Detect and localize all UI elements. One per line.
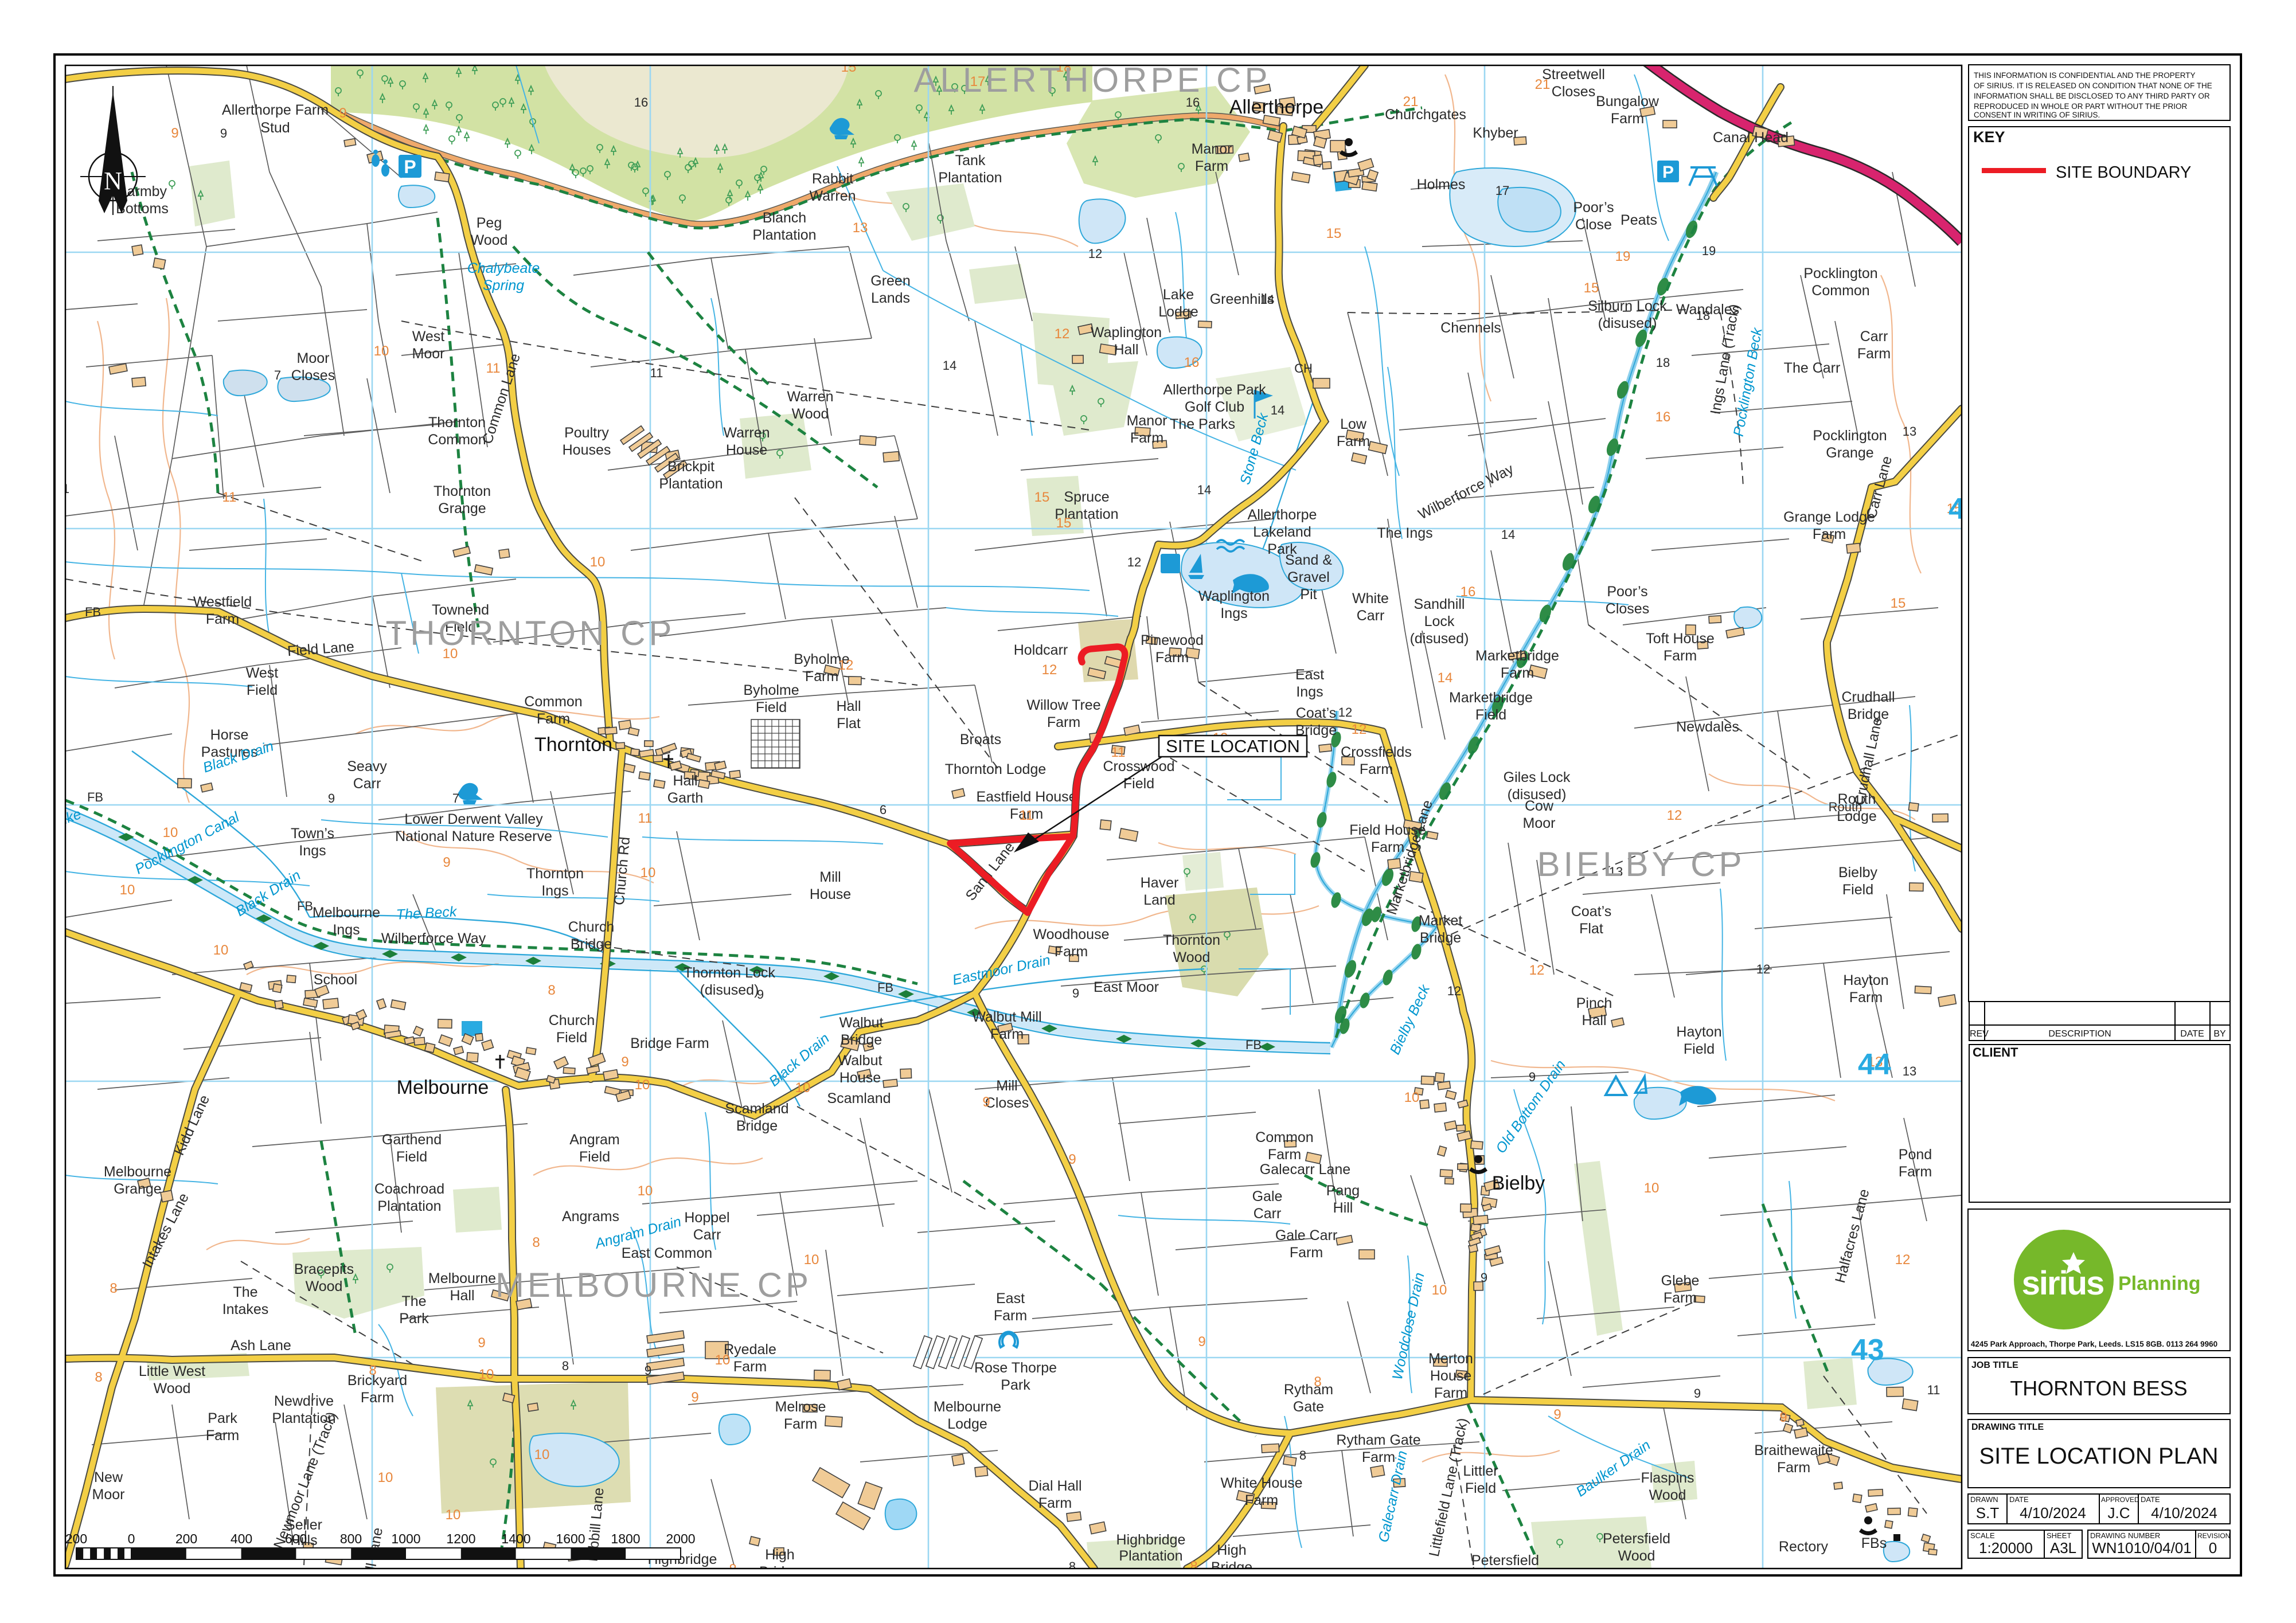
- svg-text:Byholme: Byholme: [743, 682, 799, 698]
- svg-text:9: 9: [328, 791, 335, 805]
- svg-text:Wilberforce Way: Wilberforce Way: [381, 930, 486, 947]
- svg-text:9: 9: [1481, 1270, 1487, 1285]
- svg-text:Flat: Flat: [837, 715, 861, 732]
- svg-text:14: 14: [1271, 403, 1284, 417]
- svg-text:9: 9: [645, 1363, 651, 1378]
- svg-text:Coachroad: Coachroad: [374, 1181, 444, 1197]
- svg-text:18: 18: [1656, 355, 1670, 370]
- svg-text:200: 200: [175, 1531, 197, 1546]
- svg-text:FB: FB: [877, 980, 893, 995]
- svg-text:10: 10: [795, 1080, 811, 1096]
- svg-text:Crudhall: Crudhall: [1841, 689, 1895, 705]
- svg-text:Seavy: Seavy: [347, 758, 387, 775]
- svg-text:9: 9: [1779, 1410, 1787, 1425]
- svg-text:16: 16: [1461, 584, 1476, 600]
- svg-text:JOB TITLE: JOB TITLE: [1971, 1360, 2018, 1370]
- svg-text:FB: FB: [297, 899, 313, 913]
- svg-text:Park: Park: [1267, 541, 1297, 557]
- svg-text:Allerthorpe: Allerthorpe: [1248, 507, 1317, 523]
- svg-text:Farm: Farm: [206, 1428, 239, 1444]
- svg-text:15: 15: [1891, 596, 1906, 611]
- svg-text:Houses: Houses: [563, 442, 611, 458]
- svg-text:600: 600: [285, 1531, 307, 1546]
- svg-text:10: 10: [534, 1447, 550, 1462]
- svg-text:8: 8: [532, 1235, 540, 1250]
- svg-text:1800: 1800: [611, 1531, 640, 1546]
- svg-text:14: 14: [943, 358, 956, 373]
- svg-text:Hall: Hall: [836, 698, 861, 714]
- svg-text:Hayton: Hayton: [1843, 972, 1888, 988]
- svg-text:10: 10: [1432, 1282, 1447, 1298]
- svg-text:Farm: Farm: [1290, 1245, 1323, 1261]
- svg-text:Plantation: Plantation: [1119, 1548, 1182, 1564]
- svg-text:Angram: Angram: [569, 1132, 620, 1148]
- svg-text:9: 9: [1694, 1386, 1701, 1401]
- svg-text:House: House: [1430, 1368, 1471, 1384]
- svg-text:Field: Field: [396, 1149, 427, 1165]
- svg-text:Melbourne: Melbourne: [934, 1399, 1001, 1415]
- svg-text:11: 11: [650, 366, 663, 380]
- svg-text:Marketbridge: Marketbridge: [1475, 648, 1559, 664]
- svg-text:Mill: Mill: [819, 869, 841, 885]
- svg-text:SHEET: SHEET: [2047, 1531, 2071, 1540]
- svg-text:Low: Low: [1340, 416, 1367, 432]
- svg-text:Littler: Littler: [1463, 1463, 1498, 1479]
- svg-text:43: 43: [1851, 1333, 1884, 1367]
- svg-text:Churchgates: Churchgates: [1385, 107, 1466, 123]
- svg-text:Lands: Lands: [871, 290, 910, 306]
- svg-text:Thornton Lock: Thornton Lock: [684, 965, 775, 981]
- svg-text:SITE BOUNDARY: SITE BOUNDARY: [2056, 163, 2191, 182]
- svg-text:Plantation: Plantation: [377, 1198, 441, 1214]
- svg-text:17: 17: [1495, 183, 1509, 198]
- svg-text:16: 16: [634, 95, 648, 109]
- svg-text:11: 11: [222, 490, 237, 505]
- svg-text:Crossfields: Crossfields: [1341, 744, 1412, 760]
- svg-text:Grange: Grange: [114, 1181, 161, 1197]
- svg-text:4/10/2024: 4/10/2024: [2151, 1504, 2217, 1522]
- svg-text:N: N: [104, 167, 122, 195]
- svg-text:11: 11: [638, 811, 653, 826]
- svg-text:Highbridge: Highbridge: [1116, 1532, 1186, 1548]
- svg-text:Walbut: Walbut: [838, 1053, 883, 1069]
- svg-text:Farm: Farm: [537, 711, 570, 727]
- svg-text:12: 12: [1756, 962, 1770, 976]
- svg-text:REPRODUCED IN WHOLE OR PAR: REPRODUCED IN WHOLE OR PART WITHOUT THE …: [1974, 102, 2188, 111]
- svg-text:12: 12: [1352, 722, 1367, 737]
- svg-text:SITE LOCATION: SITE LOCATION: [1166, 736, 1300, 756]
- svg-text:12: 12: [1895, 1252, 1911, 1268]
- svg-text:Farm: Farm: [1813, 526, 1846, 542]
- svg-text:Pocklington: Pocklington: [1803, 265, 1877, 281]
- svg-text:House: House: [810, 886, 851, 902]
- svg-text:(disused): (disused): [1410, 631, 1469, 647]
- svg-text:Melrose: Melrose: [775, 1399, 826, 1415]
- svg-text:9: 9: [443, 855, 450, 870]
- svg-text:The: The: [233, 1284, 257, 1300]
- svg-text:High: High: [1217, 1542, 1246, 1558]
- svg-text:Hill: Hill: [1333, 1200, 1353, 1216]
- svg-text:Town’s: Town’s: [291, 826, 334, 842]
- svg-text:Ings: Ings: [333, 922, 360, 938]
- svg-text:9: 9: [478, 1335, 485, 1351]
- svg-text:Farm: Farm: [1371, 839, 1404, 855]
- svg-text:Farm: Farm: [1195, 158, 1228, 174]
- svg-text:Lodge: Lodge: [947, 1416, 987, 1432]
- svg-text:2000: 2000: [666, 1531, 695, 1546]
- svg-text:REV: REV: [1970, 1029, 1989, 1039]
- svg-text:Park: Park: [208, 1410, 237, 1426]
- svg-text:Moor: Moor: [92, 1487, 125, 1503]
- svg-text:Gate: Gate: [1293, 1399, 1324, 1415]
- svg-text:(disused): (disused): [700, 982, 759, 998]
- svg-text:Farm: Farm: [1849, 990, 1883, 1006]
- svg-text:Allerthorpe: Allerthorpe: [1229, 96, 1323, 118]
- svg-text:10: 10: [804, 1252, 819, 1268]
- svg-text:10: 10: [635, 1077, 650, 1093]
- svg-text:P: P: [1662, 163, 1674, 182]
- svg-text:Cow: Cow: [1525, 798, 1554, 814]
- svg-text:Farm: Farm: [805, 668, 838, 685]
- svg-text:15: 15: [1584, 280, 1599, 296]
- svg-text:Allerthorpe Park: Allerthorpe Park: [1163, 382, 1266, 398]
- svg-text:Coat’s: Coat’s: [1571, 904, 1611, 920]
- svg-text:18: 18: [1696, 308, 1710, 323]
- svg-text:Giles Lock: Giles Lock: [1504, 769, 1571, 785]
- svg-text:10: 10: [378, 1470, 393, 1485]
- svg-text:THORNTON CP: THORNTON CP: [386, 614, 675, 652]
- svg-text:Pond: Pond: [1899, 1147, 1932, 1163]
- svg-text:9: 9: [982, 1094, 990, 1110]
- svg-text:Farm: Farm: [1664, 648, 1697, 664]
- svg-text:Bungalow: Bungalow: [1596, 93, 1659, 109]
- svg-text:DATE: DATE: [2009, 1495, 2029, 1504]
- svg-text:Hall: Hall: [450, 1288, 474, 1304]
- svg-text:Farm: Farm: [990, 1026, 1024, 1042]
- svg-text:4245 Park Approach, Thorpe Par: 4245 Park Approach, Thorpe Park, Leeds. …: [1971, 1340, 2217, 1348]
- svg-text:8: 8: [562, 1359, 569, 1373]
- svg-text:Bracepits: Bracepits: [294, 1261, 354, 1277]
- svg-text:DESCRIPTION: DESCRIPTION: [2048, 1029, 2111, 1039]
- svg-text:Scamland: Scamland: [827, 1090, 891, 1106]
- svg-text:SCALE: SCALE: [1970, 1531, 1995, 1540]
- svg-text:THORNTON BESS: THORNTON BESS: [2010, 1376, 2187, 1400]
- svg-text:CLIENT: CLIENT: [1973, 1045, 2018, 1059]
- svg-text:Poor’s: Poor’s: [1607, 584, 1647, 600]
- svg-text:DRAWING NUMBER: DRAWING NUMBER: [2090, 1531, 2160, 1540]
- svg-text:Chennels: Chennels: [1440, 320, 1501, 336]
- svg-text:FBs: FBs: [1861, 1535, 1887, 1551]
- svg-text:Grange: Grange: [1826, 445, 1873, 461]
- svg-text:Church: Church: [568, 919, 615, 935]
- svg-text:10: 10: [715, 1352, 731, 1368]
- svg-text:9: 9: [757, 987, 764, 1002]
- svg-text:S.T: S.T: [1976, 1504, 2000, 1522]
- svg-text:200: 200: [65, 1531, 87, 1546]
- svg-text:9: 9: [1198, 1334, 1205, 1350]
- svg-text:Common: Common: [524, 694, 582, 710]
- svg-text:Plantation: Plantation: [938, 170, 1002, 186]
- svg-text:(disused): (disused): [1598, 315, 1657, 331]
- svg-text:12: 12: [1127, 555, 1141, 569]
- svg-text:Wood: Wood: [792, 406, 829, 422]
- svg-text:Farm: Farm: [1360, 761, 1393, 777]
- svg-text:400: 400: [231, 1531, 252, 1546]
- svg-text:House: House: [726, 442, 767, 458]
- svg-text:Farm: Farm: [733, 1359, 767, 1375]
- svg-text:Golf Club: Golf Club: [1185, 399, 1244, 415]
- svg-text:19: 19: [1615, 249, 1631, 264]
- svg-text:12: 12: [1447, 984, 1461, 998]
- svg-text:Brickpit: Brickpit: [667, 459, 714, 475]
- svg-text:Farm: Farm: [206, 611, 239, 627]
- svg-text:0: 0: [128, 1531, 135, 1546]
- svg-text:1600: 1600: [556, 1531, 585, 1546]
- svg-text:Poor’s: Poor’s: [1573, 200, 1614, 216]
- svg-text:Walbut: Walbut: [839, 1015, 884, 1031]
- svg-text:Waplington: Waplington: [1198, 588, 1270, 604]
- svg-text:Horse: Horse: [210, 727, 249, 743]
- svg-text:Park: Park: [399, 1311, 429, 1327]
- svg-text:21: 21: [1535, 77, 1551, 92]
- svg-text:West: West: [246, 665, 279, 681]
- svg-text:Melbourne: Melbourne: [104, 1164, 171, 1180]
- svg-text:10: 10: [120, 882, 135, 898]
- svg-text:12: 12: [1042, 662, 1057, 678]
- svg-text:Lodge: Lodge: [1158, 304, 1198, 320]
- svg-text:Planning: Planning: [2118, 1273, 2201, 1295]
- svg-text:Thornton: Thornton: [434, 483, 491, 499]
- svg-text:Plantation: Plantation: [659, 476, 723, 492]
- svg-text:Newdrive: Newdrive: [274, 1393, 334, 1409]
- svg-text:The Parks: The Parks: [1170, 416, 1235, 432]
- svg-text:800: 800: [340, 1531, 362, 1546]
- svg-text:12: 12: [838, 658, 854, 673]
- svg-text:14: 14: [1260, 292, 1274, 307]
- svg-text:Bridge: Bridge: [571, 936, 612, 952]
- svg-text:Moor: Moor: [1523, 815, 1556, 831]
- svg-text:16: 16: [1655, 409, 1671, 425]
- svg-text:Warren: Warren: [809, 188, 856, 204]
- svg-text:BY: BY: [2213, 1029, 2226, 1039]
- svg-text:Glebe: Glebe: [1661, 1273, 1700, 1289]
- svg-text:Wood: Wood: [154, 1380, 191, 1397]
- svg-text:16: 16: [1184, 355, 1200, 370]
- svg-text:Woodhouse: Woodhouse: [1033, 926, 1110, 942]
- svg-text:Galecarr Lane: Galecarr Lane: [1260, 1161, 1350, 1178]
- svg-text:The Beck: The Beck: [396, 904, 458, 923]
- svg-text:A3L: A3L: [2050, 1539, 2076, 1556]
- svg-text:Thornton: Thornton: [1163, 932, 1220, 948]
- svg-text:Silburn Lock: Silburn Lock: [1588, 298, 1667, 314]
- svg-text:7: 7: [452, 791, 459, 805]
- svg-text:10: 10: [590, 554, 606, 570]
- svg-text:APPROVED: APPROVED: [2101, 1496, 2139, 1504]
- svg-text:Carr: Carr: [1860, 328, 1888, 345]
- svg-text:Mill: Mill: [996, 1078, 1018, 1094]
- svg-text:Angrams: Angrams: [562, 1209, 619, 1225]
- svg-text:10: 10: [374, 343, 389, 359]
- svg-text:Scamland: Scamland: [725, 1101, 788, 1117]
- svg-text:9: 9: [1553, 1407, 1561, 1422]
- svg-text:13: 13: [1903, 424, 1916, 439]
- svg-text:Farm: Farm: [784, 1416, 817, 1432]
- svg-text:High: High: [765, 1547, 794, 1563]
- svg-text:8: 8: [1299, 1448, 1306, 1462]
- svg-text:Farm: Farm: [1777, 1460, 1810, 1476]
- svg-text:BIELBY CP: BIELBY CP: [1537, 845, 1745, 883]
- svg-text:Lake: Lake: [1163, 287, 1194, 303]
- svg-text:9: 9: [1072, 986, 1079, 1000]
- svg-text:Manor: Manor: [1192, 141, 1232, 157]
- svg-text:Hall: Hall: [1114, 342, 1138, 358]
- svg-text:11: 11: [1927, 1383, 1940, 1397]
- svg-text:OF SIRIUS. IT IS RELEASED ON C: OF SIRIUS. IT IS RELEASED ON CONDITION T…: [1974, 81, 2212, 90]
- svg-text:Hayton: Hayton: [1676, 1024, 1721, 1040]
- svg-text:Farm: Farm: [1268, 1147, 1301, 1163]
- svg-text:Warren: Warren: [787, 389, 833, 405]
- svg-text:J.C: J.C: [2108, 1504, 2130, 1522]
- svg-text:Bridge: Bridge: [1420, 930, 1461, 946]
- svg-text:Wood: Wood: [306, 1278, 343, 1295]
- svg-text:Thornton: Thornton: [428, 414, 486, 431]
- svg-text:White House: White House: [1220, 1475, 1302, 1491]
- svg-text:Canal Head: Canal Head: [1713, 130, 1789, 146]
- svg-text:Melbourne: Melbourne: [313, 905, 380, 921]
- svg-text:Land: Land: [1143, 892, 1176, 908]
- svg-text:15: 15: [1056, 515, 1072, 531]
- svg-text:Braithewaite: Braithewaite: [1754, 1442, 1833, 1458]
- svg-text:Bielby: Bielby: [1492, 1172, 1545, 1194]
- svg-text:10: 10: [638, 1183, 653, 1199]
- svg-text:DRAWN: DRAWN: [1970, 1495, 1998, 1504]
- svg-text:sirius: sirius: [2022, 1265, 2104, 1302]
- svg-text:Field: Field: [247, 682, 278, 698]
- svg-text:The Ings: The Ings: [1377, 525, 1432, 541]
- svg-text:The: The: [401, 1293, 426, 1309]
- svg-text:Farm: Farm: [1434, 1385, 1467, 1401]
- svg-text:CH: CH: [1294, 361, 1313, 376]
- svg-text:Common: Common: [1255, 1129, 1313, 1145]
- svg-text:Green: Green: [870, 273, 910, 289]
- svg-text:Ings: Ings: [541, 883, 568, 899]
- svg-text:8: 8: [548, 983, 555, 998]
- svg-text:Farm: Farm: [1664, 1290, 1697, 1306]
- svg-text:1200: 1200: [446, 1531, 475, 1546]
- svg-text:Farm: Farm: [1047, 714, 1080, 730]
- svg-text:11: 11: [1020, 808, 1034, 823]
- svg-text:Holmes: Holmes: [1417, 177, 1466, 193]
- svg-text:Common: Common: [428, 432, 486, 448]
- svg-text:Farm: Farm: [1245, 1492, 1278, 1508]
- svg-text:14: 14: [1501, 527, 1515, 542]
- svg-text:13: 13: [1903, 1064, 1916, 1078]
- svg-text:Coat’s: Coat’s: [1296, 705, 1336, 721]
- svg-text:Bielby: Bielby: [1838, 865, 1878, 881]
- svg-text:Farm: Farm: [1501, 665, 1534, 681]
- svg-text:WN1010/04/01: WN1010/04/01: [2092, 1539, 2191, 1556]
- svg-text:Rytham: Rytham: [1284, 1382, 1333, 1398]
- svg-text:Farm: Farm: [1611, 111, 1644, 127]
- svg-text:Rytham Gate: Rytham Gate: [1336, 1432, 1420, 1448]
- svg-text:East Moor: East Moor: [1094, 979, 1159, 995]
- svg-text:Tank: Tank: [955, 152, 986, 169]
- svg-text:Field: Field: [579, 1149, 610, 1165]
- svg-text:Closes: Closes: [985, 1095, 1029, 1111]
- svg-text:Pang: Pang: [1326, 1183, 1360, 1199]
- svg-text:Haver: Haver: [1141, 875, 1179, 891]
- svg-text:Flat: Flat: [1579, 921, 1603, 937]
- svg-text:Rose Thorpe: Rose Thorpe: [974, 1360, 1057, 1376]
- svg-text:0: 0: [2209, 1539, 2217, 1556]
- svg-text:12: 12: [1667, 808, 1682, 823]
- svg-text:Melbourne: Melbourne: [428, 1270, 496, 1286]
- svg-text:Waplington: Waplington: [1091, 324, 1162, 341]
- svg-text:Ryedale: Ryedale: [724, 1342, 776, 1358]
- svg-text:Lower Derwent Valley: Lower Derwent Valley: [404, 811, 543, 827]
- svg-text:FB: FB: [85, 605, 101, 619]
- svg-text:8: 8: [110, 1281, 117, 1296]
- svg-text:1000: 1000: [391, 1531, 420, 1546]
- svg-text:DATE: DATE: [2180, 1029, 2204, 1039]
- svg-text:9: 9: [220, 126, 227, 140]
- svg-text:Peats: Peats: [1621, 212, 1657, 228]
- svg-text:Field: Field: [1475, 707, 1506, 723]
- svg-text:Flaspins: Flaspins: [1641, 1470, 1694, 1486]
- svg-text:12: 12: [1338, 705, 1352, 719]
- svg-text:7: 7: [274, 368, 281, 382]
- svg-text:Plantation: Plantation: [752, 227, 816, 243]
- svg-text:MELBOURNE CP: MELBOURNE CP: [495, 1266, 812, 1304]
- svg-text:Chalybeate: Chalybeate: [467, 260, 540, 276]
- svg-text:10: 10: [213, 942, 229, 958]
- svg-text:Field: Field: [556, 1030, 587, 1046]
- svg-text:New: New: [94, 1469, 123, 1485]
- svg-text:Sandhill: Sandhill: [1414, 596, 1465, 612]
- svg-text:11: 11: [1111, 745, 1126, 760]
- svg-text:Closes: Closes: [291, 367, 335, 384]
- svg-text:Garthend: Garthend: [382, 1132, 442, 1148]
- svg-text:Park: Park: [1001, 1377, 1030, 1393]
- svg-text:National Nature Reserve: National Nature Reserve: [395, 828, 552, 844]
- svg-text:Farm: Farm: [1130, 430, 1163, 446]
- svg-text:White: White: [1352, 590, 1389, 607]
- svg-text:Warren: Warren: [723, 425, 770, 441]
- svg-text:14: 14: [1438, 670, 1453, 686]
- svg-text:Farm: Farm: [994, 1308, 1027, 1324]
- svg-text:Church: Church: [549, 1012, 595, 1028]
- svg-text:Garth: Garth: [667, 790, 704, 806]
- svg-text:Closes: Closes: [1606, 601, 1649, 617]
- svg-text:Pinch: Pinch: [1576, 995, 1612, 1011]
- svg-text:15: 15: [1326, 226, 1342, 241]
- svg-text:Ash Lane: Ash Lane: [231, 1337, 291, 1354]
- svg-text:ALLERTHORPE CP: ALLERTHORPE CP: [913, 61, 1271, 99]
- svg-text:Marketbridge: Marketbridge: [1449, 690, 1533, 706]
- svg-text:Market: Market: [1419, 913, 1462, 929]
- svg-text:KEY: KEY: [1973, 128, 2005, 146]
- svg-text:9: 9: [621, 1054, 628, 1070]
- svg-text:Eastfield House: Eastfield House: [976, 789, 1076, 805]
- svg-text:8: 8: [1314, 1374, 1321, 1390]
- svg-text:Spring: Spring: [483, 277, 524, 294]
- svg-text:1:20000: 1:20000: [1979, 1539, 2033, 1556]
- svg-text:9: 9: [171, 126, 178, 141]
- svg-text:Little West: Little West: [139, 1363, 205, 1379]
- svg-text:Farm: Farm: [361, 1390, 394, 1406]
- svg-text:DATE: DATE: [2141, 1495, 2160, 1504]
- svg-text:15: 15: [1034, 490, 1050, 505]
